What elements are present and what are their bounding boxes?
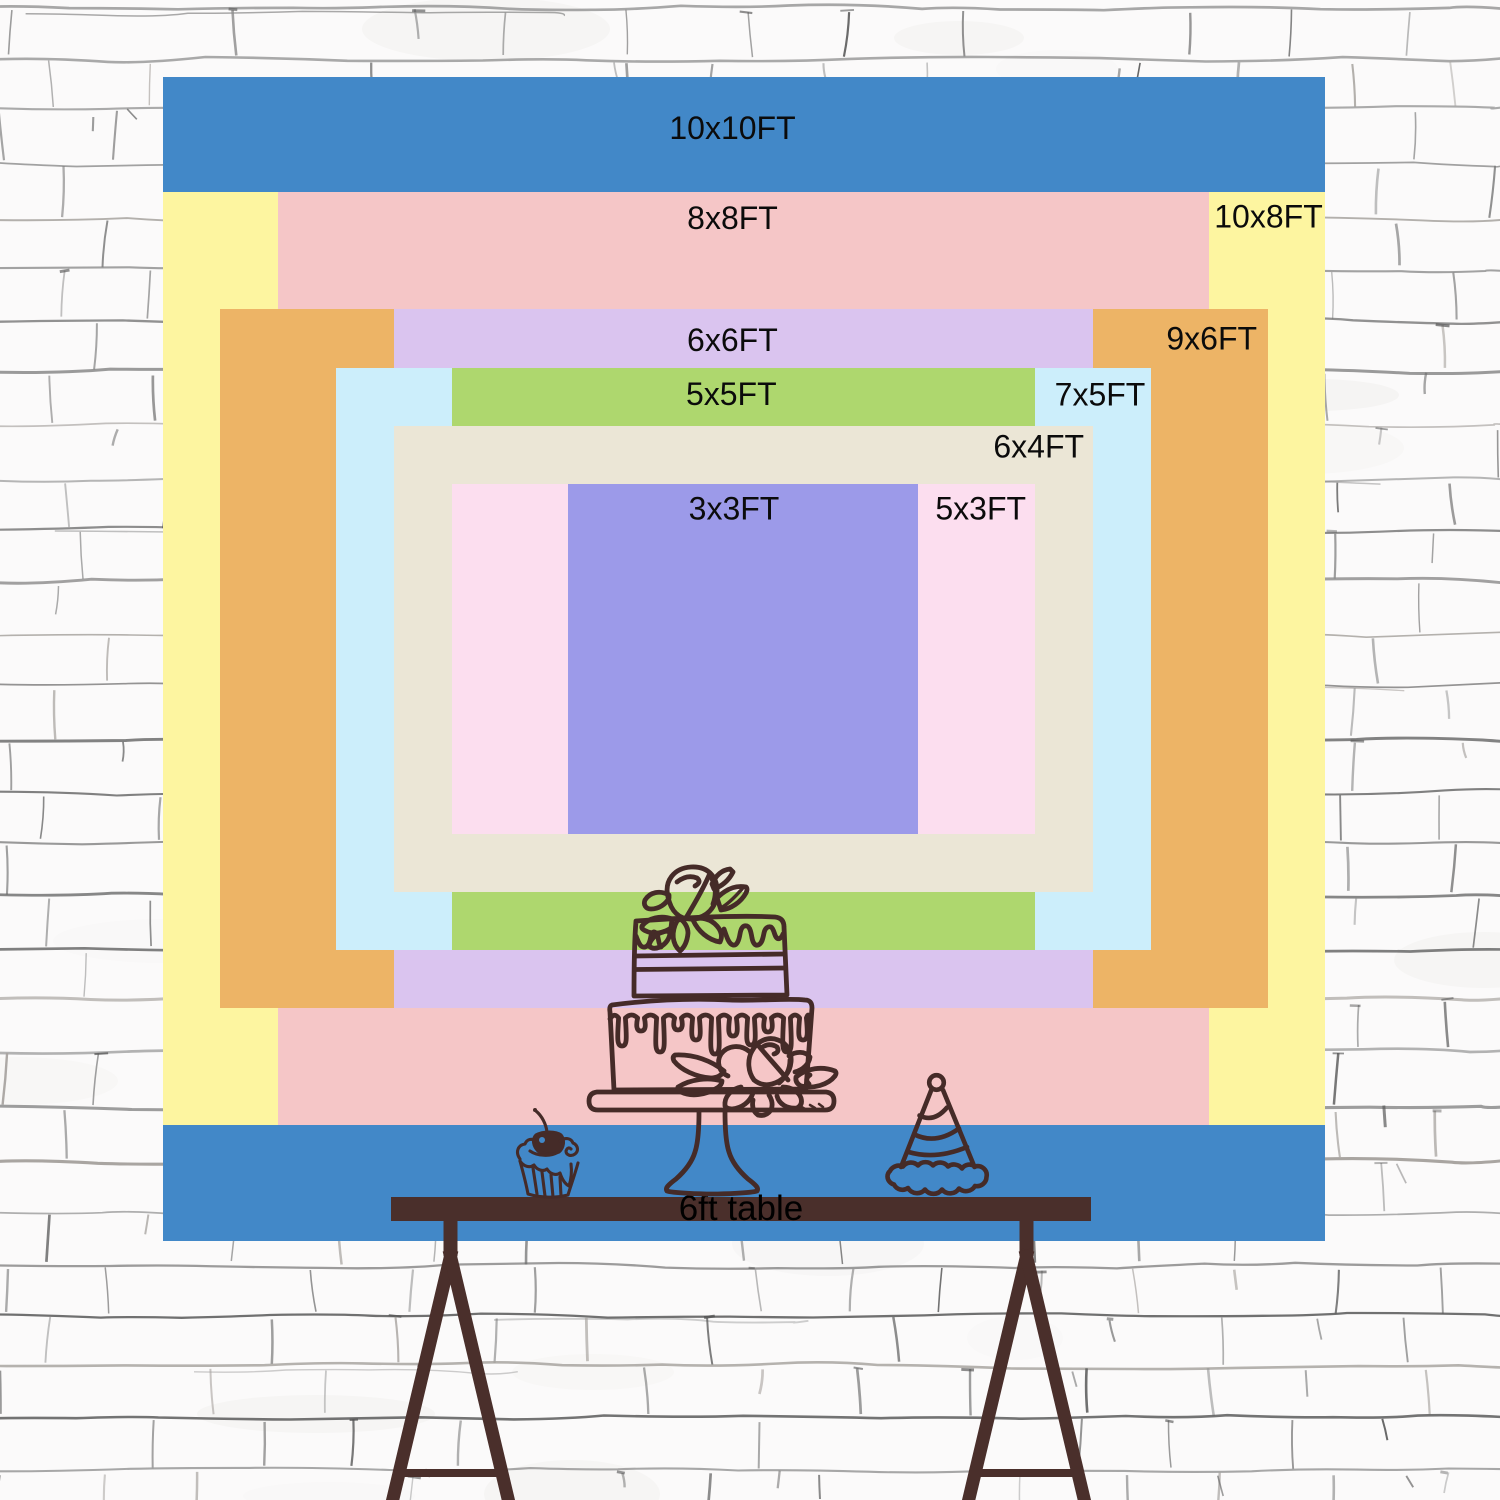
svg-text:5x3FT: 5x3FT [935, 491, 1026, 527]
svg-text:10x10FT: 10x10FT [669, 110, 795, 146]
svg-text:9x6FT: 9x6FT [1166, 321, 1257, 357]
svg-text:6x6FT: 6x6FT [687, 322, 778, 358]
svg-text:8x8FT: 8x8FT [687, 200, 778, 236]
svg-text:3x3FT: 3x3FT [689, 491, 780, 527]
svg-text:5x5FT: 5x5FT [686, 376, 777, 412]
svg-text:10x8FT: 10x8FT [1214, 199, 1322, 235]
svg-text:6x4FT: 6x4FT [993, 429, 1084, 465]
svg-text:7x5FT: 7x5FT [1055, 377, 1146, 413]
